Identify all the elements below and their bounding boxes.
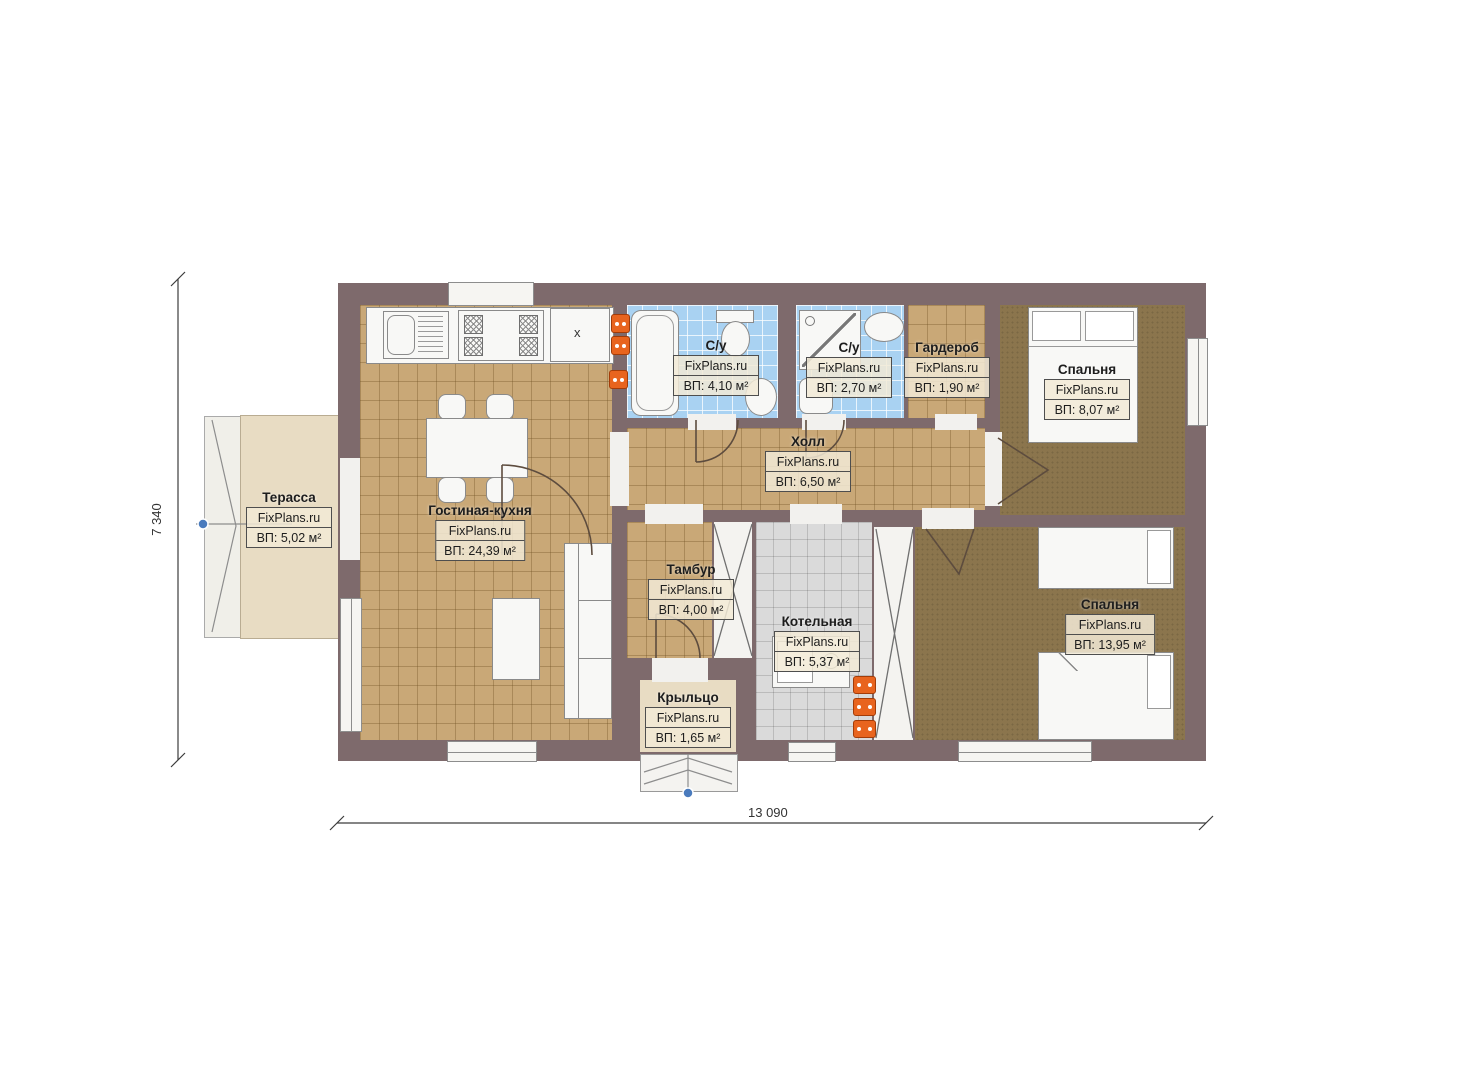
sofa — [564, 543, 612, 719]
radiator-icon — [853, 720, 876, 738]
dining-chair — [438, 394, 466, 420]
room-name: Тамбур — [648, 562, 734, 577]
room-area: ВП: 4,00 м² — [649, 599, 733, 619]
single-bed — [1038, 527, 1174, 589]
room-name: С/у — [673, 338, 759, 353]
dimension-width: 13 090 — [748, 805, 788, 820]
room-label-bedroom-2: Спальня FixPlans.ru ВП: 13,95 м² — [1065, 597, 1155, 655]
dining-table — [426, 418, 528, 478]
room-area: ВП: 5,37 м² — [775, 651, 859, 671]
room-label-vestibule: Тамбур FixPlans.ru ВП: 4,00 м² — [648, 562, 734, 620]
brand-watermark: FixPlans.ru — [807, 358, 891, 377]
radiator-icon — [611, 336, 630, 355]
room-area: ВП: 8,07 м² — [1045, 399, 1129, 419]
single-bed — [1038, 652, 1174, 740]
cabinet-mark: x — [574, 325, 581, 340]
room-label-bathroom-2: С/у FixPlans.ru ВП: 2,70 м² — [806, 340, 892, 398]
room-area: ВП: 1,90 м² — [905, 377, 989, 397]
window-living-bottom — [447, 741, 537, 762]
door-opening-wardrobe — [935, 414, 977, 430]
room-area: ВП: 6,50 м² — [766, 471, 850, 491]
room-name: Спальня — [1065, 597, 1155, 612]
terrace-stairs — [204, 416, 242, 638]
coffee-table — [492, 598, 540, 680]
door-opening-boiler — [790, 504, 842, 524]
opening-hall-vestibule — [645, 504, 703, 524]
room-name: Спальня — [1044, 362, 1130, 377]
door-opening-bedroom1 — [985, 432, 1002, 506]
dimension-height: 7 340 — [149, 503, 164, 536]
bathtub — [631, 310, 679, 416]
room-label-living-kitchen: Гостиная-кухня FixPlans.ru ВП: 24,39 м² — [428, 503, 531, 561]
radiator-icon — [609, 370, 628, 389]
kitchen-drainer — [418, 316, 443, 352]
kitchen-stove — [458, 310, 544, 361]
room-name: Крыльцо — [645, 690, 731, 705]
room-area: ВП: 2,70 м² — [807, 377, 891, 397]
room-name: Котельная — [774, 614, 860, 629]
window-bedroom2-bottom — [958, 741, 1092, 762]
radiator-icon — [853, 676, 876, 694]
room-label-boiler-room: Котельная FixPlans.ru ВП: 5,37 м² — [774, 614, 860, 672]
room-label-porch: Крыльцо FixPlans.ru ВП: 1,65 м² — [645, 690, 731, 748]
room-name: Гардероб — [904, 340, 990, 355]
room-name: Терасса — [246, 490, 332, 505]
room-area: ВП: 24,39 м² — [436, 540, 524, 560]
room-name: Холл — [765, 434, 851, 449]
room-area: ВП: 13,95 м² — [1066, 634, 1154, 654]
room-label-bedroom-1: Спальня FixPlans.ru ВП: 8,07 м² — [1044, 362, 1130, 420]
brand-watermark: FixPlans.ru — [775, 632, 859, 651]
porch-steps — [640, 754, 738, 792]
chimney-block — [448, 282, 534, 306]
radiator-icon — [611, 314, 630, 333]
floor-plan-canvas: x — [0, 0, 1474, 1080]
dining-chair — [486, 394, 514, 420]
porch-door-opening — [652, 658, 708, 682]
window-living-left — [340, 598, 362, 732]
door-opening-bedroom2 — [922, 508, 974, 529]
brand-watermark: FixPlans.ru — [646, 708, 730, 727]
kitchen-sink-basin — [387, 315, 415, 355]
room-name: Гостиная-кухня — [428, 503, 531, 518]
terrace-door-opening — [340, 458, 360, 560]
brand-watermark: FixPlans.ru — [766, 452, 850, 471]
room-name: С/у — [806, 340, 892, 355]
window-boiler-bottom — [788, 742, 836, 762]
window-bedroom1-right — [1187, 338, 1208, 426]
dining-chair — [438, 477, 466, 503]
brand-watermark: FixPlans.ru — [1045, 380, 1129, 399]
room-area: ВП: 4,10 м² — [674, 375, 758, 395]
door-opening-bath2 — [802, 414, 846, 430]
brand-watermark: FixPlans.ru — [905, 358, 989, 377]
room-area: ВП: 5,02 м² — [247, 527, 331, 547]
room-area: ВП: 1,65 м² — [646, 727, 730, 747]
brand-watermark: FixPlans.ru — [247, 508, 331, 527]
room-label-wardrobe: Гардероб FixPlans.ru ВП: 1,90 м² — [904, 340, 990, 398]
opening-living-hall — [610, 432, 629, 506]
room-label-bathroom-1: С/у FixPlans.ru ВП: 4,10 м² — [673, 338, 759, 396]
brand-watermark: FixPlans.ru — [436, 521, 524, 540]
bathroom-sink — [864, 312, 904, 342]
room-label-terrace: Терасса FixPlans.ru ВП: 5,02 м² — [246, 490, 332, 548]
brand-watermark: FixPlans.ru — [674, 356, 758, 375]
door-opening-bath1 — [688, 414, 736, 430]
closet-strip-bedroom-2 — [874, 527, 913, 740]
dining-chair — [486, 477, 514, 503]
brand-watermark: FixPlans.ru — [1066, 615, 1154, 634]
room-label-hall: Холл FixPlans.ru ВП: 6,50 м² — [765, 434, 851, 492]
brand-watermark: FixPlans.ru — [649, 580, 733, 599]
radiator-icon — [853, 698, 876, 716]
